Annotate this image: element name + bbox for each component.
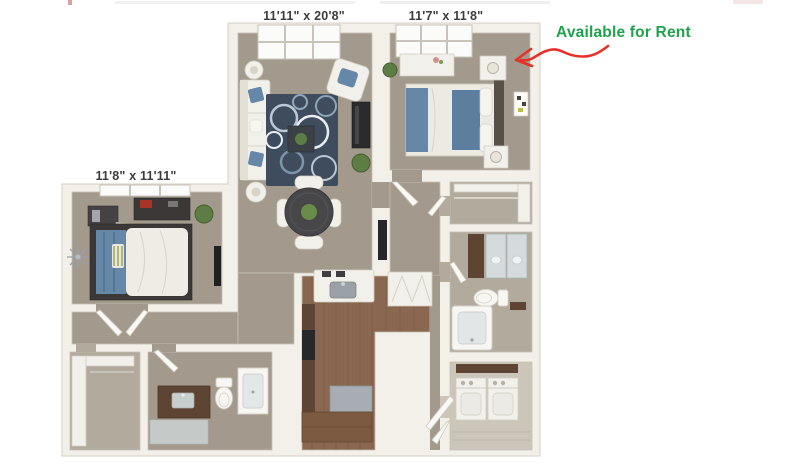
dining-chair-bottom [295,236,323,249]
nightstand-bottom [484,146,508,168]
floor-plan-page: 11'11" x 20'8" 11'7" x 11'8" 11'8" x 11'… [0,0,800,466]
closet-shelf-side [518,184,530,222]
bedroom-right-dimensions: 11'7" x 11'8" [409,9,484,23]
toilet [216,378,233,409]
living-plant [352,154,370,172]
dresser-flowers [433,57,439,63]
wall-tv [214,246,221,286]
corner-plant [383,63,397,77]
tv-screen [355,106,359,144]
bed-blue-duvet [452,90,480,150]
coffee-table [288,126,314,152]
dining-chair-top [295,176,323,189]
bath-shelf [510,302,526,310]
closet-shelving-vertical [72,356,86,446]
vanity [158,386,210,418]
cropped-text-artifact [68,0,763,5]
dresser [400,54,454,76]
island-steel-counter [330,386,372,412]
washer [456,378,486,420]
hall-right-floor [390,182,440,276]
laundry-shelf [456,364,518,373]
living-hall-opening [372,182,390,208]
dryer [488,378,518,420]
bed-white-duvet [126,228,188,296]
toilet [474,290,508,307]
range [302,330,315,360]
living-room-dimensions: 11'11" x 20'8" [263,9,345,23]
dining-centerpiece-plant [301,204,317,220]
bedroom-left-dimensions: 11'8" x 11'11" [95,169,176,183]
bathroom-right-door-opening [440,262,450,282]
shower [238,368,268,414]
living-room-window [258,25,340,59]
bed [90,224,192,300]
bedroom-right-window [396,25,472,57]
bathtub [452,306,492,350]
hall-center-floor [238,273,294,344]
sofa-backrest [240,80,248,180]
hall-left-floor [72,312,238,344]
bedroom-left-door-opening [96,304,148,314]
closet-shelving-horizontal [86,356,134,366]
sofa-pillow-bottom [248,151,265,168]
end-table-top [245,61,263,79]
closet-shelf-top [454,184,528,192]
lamp [491,152,502,163]
tv-console [352,102,370,148]
lamp [488,63,499,74]
bed-striped-pillow [112,244,124,268]
stove-burner-1 [322,271,331,277]
bedroom-left-plant [195,205,213,223]
floor-plan [62,23,540,456]
mirror-reflection [150,420,208,444]
starburst-wall-decor [67,246,89,268]
bed-blue-throw [406,88,428,152]
bedroom-right-door-opening [392,170,422,182]
pantry-closet [388,272,432,306]
bedroom-left-window [100,185,190,196]
vanity-cabinet [468,234,484,278]
closet-left-door-opening [76,344,96,352]
wall-art [514,92,528,116]
available-for-rent-label: Available for Rent [556,24,691,41]
end-table-bottom [246,182,266,202]
bed-pillow-1 [480,88,492,116]
coffee-table-plant [295,133,307,145]
sofa-pillow-mid [250,120,262,132]
floor-plan-image: 11'11" x 20'8" 11'7" x 11'8" 11'8" x 11'… [0,0,800,466]
nightstand-top [480,56,506,80]
faucet [341,282,345,286]
dresser-red-item [140,200,152,208]
stove-burner-2 [336,271,345,277]
hall-stub-tv [378,220,387,260]
